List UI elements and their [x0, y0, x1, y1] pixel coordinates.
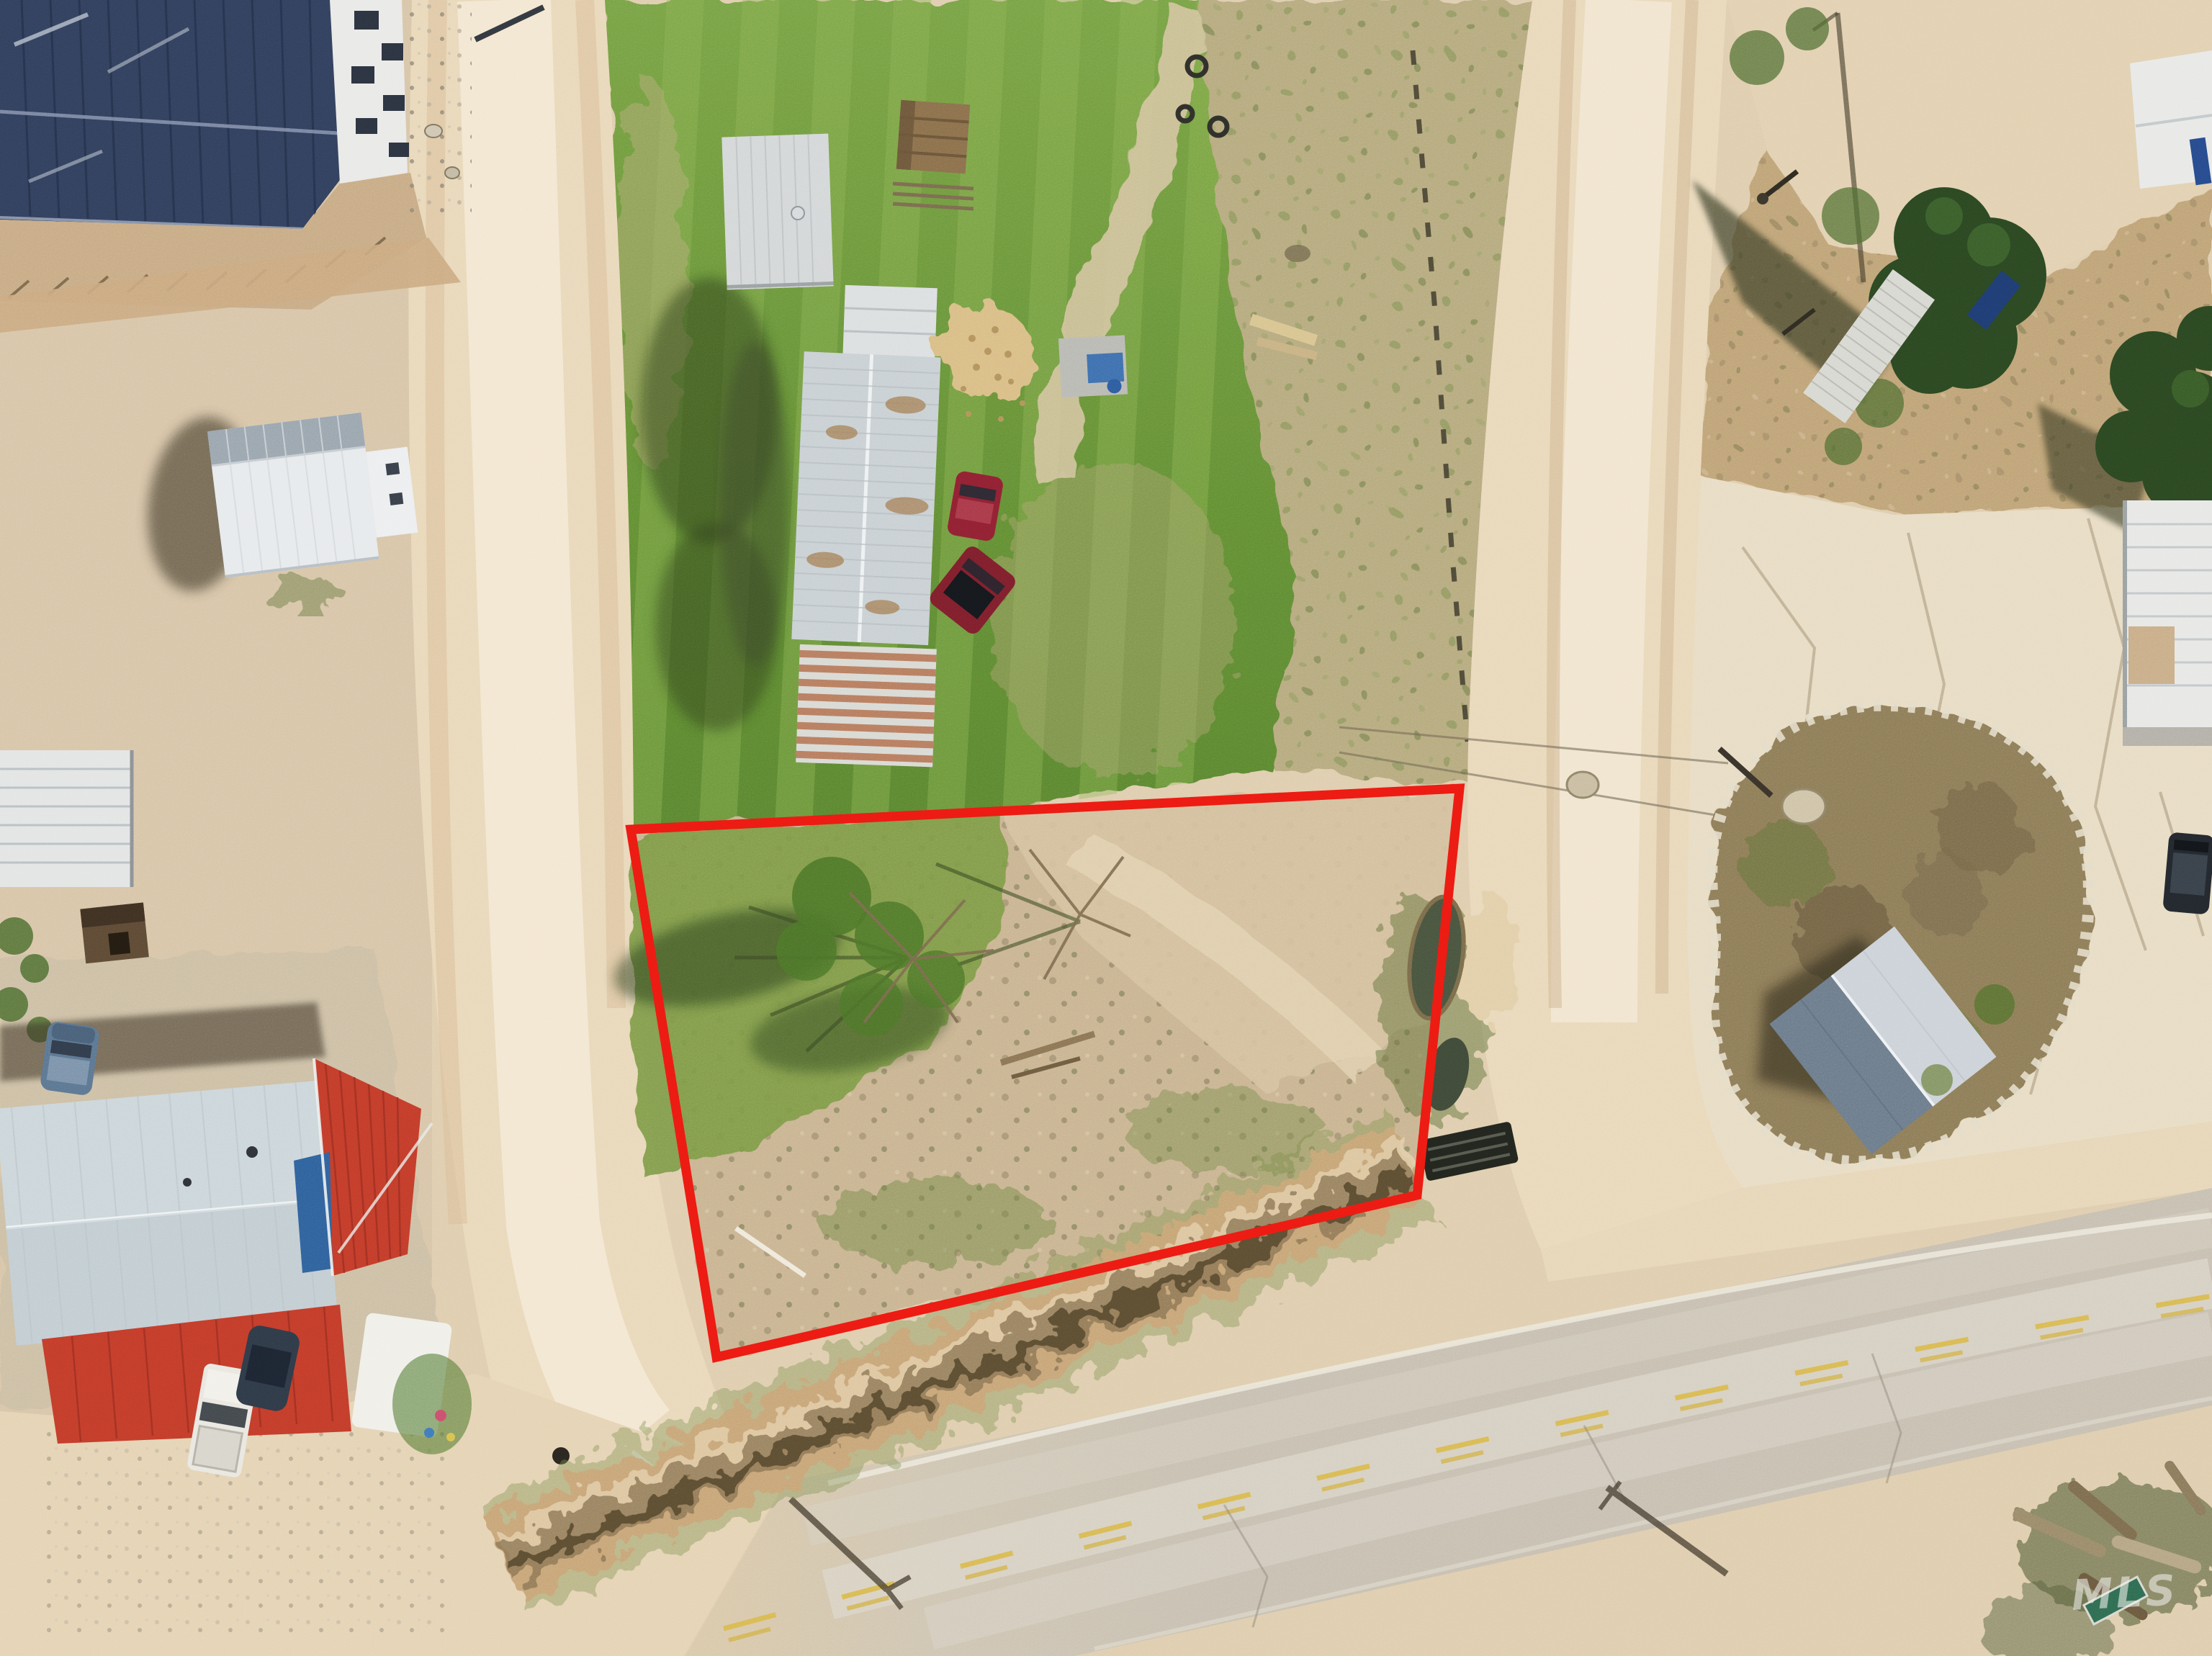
aerial-photo: MLS	[0, 0, 2212, 1656]
aerial-photo-stage: MLS	[0, 0, 2212, 1656]
photo-grain-overlay	[0, 0, 2212, 1656]
